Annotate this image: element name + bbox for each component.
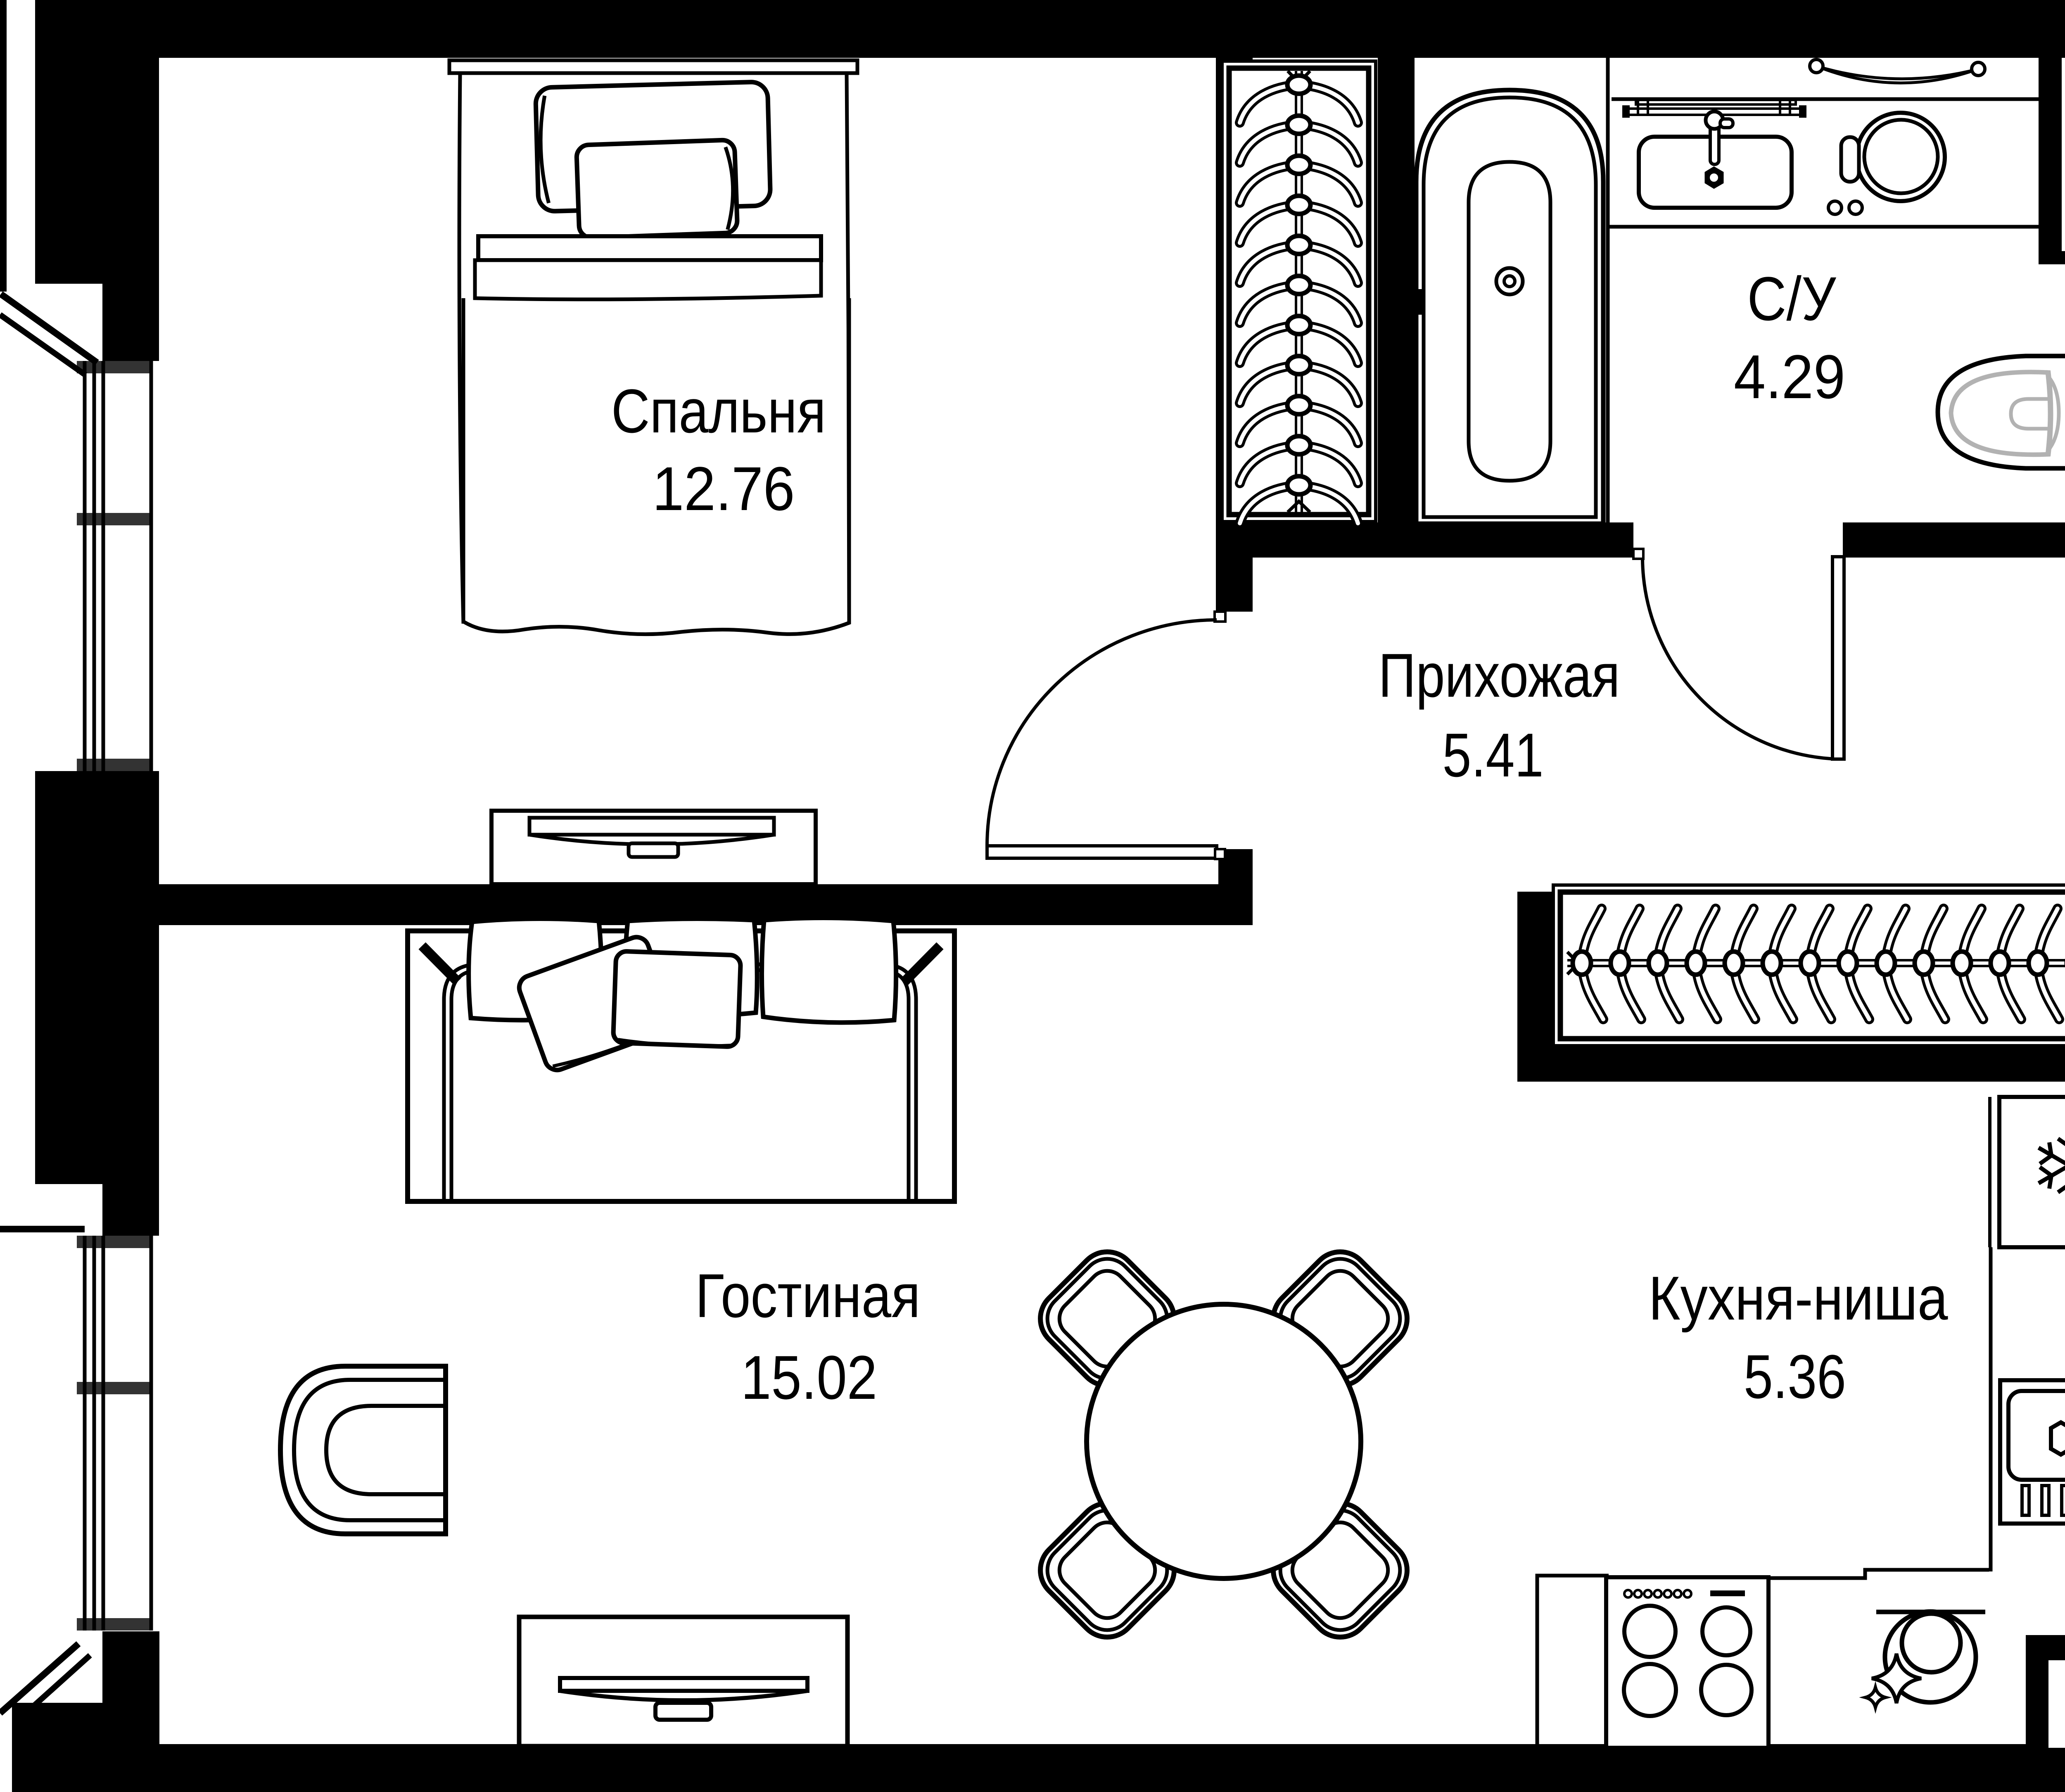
svg-text:Прихожая: Прихожая xyxy=(1379,641,1620,710)
svg-text:5.36: 5.36 xyxy=(1744,1342,1846,1411)
svg-text:Спальня: Спальня xyxy=(611,376,826,446)
svg-text:5.41: 5.41 xyxy=(1443,720,1544,790)
svg-text:4.29: 4.29 xyxy=(1734,342,1845,411)
svg-text:С/У: С/У xyxy=(1747,264,1837,333)
svg-text:12.76: 12.76 xyxy=(653,454,795,523)
svg-text:Кухня-ниша: Кухня-ниша xyxy=(1649,1263,1949,1333)
svg-text:Гостиная: Гостиная xyxy=(695,1261,921,1330)
svg-text:15.02: 15.02 xyxy=(741,1343,877,1412)
